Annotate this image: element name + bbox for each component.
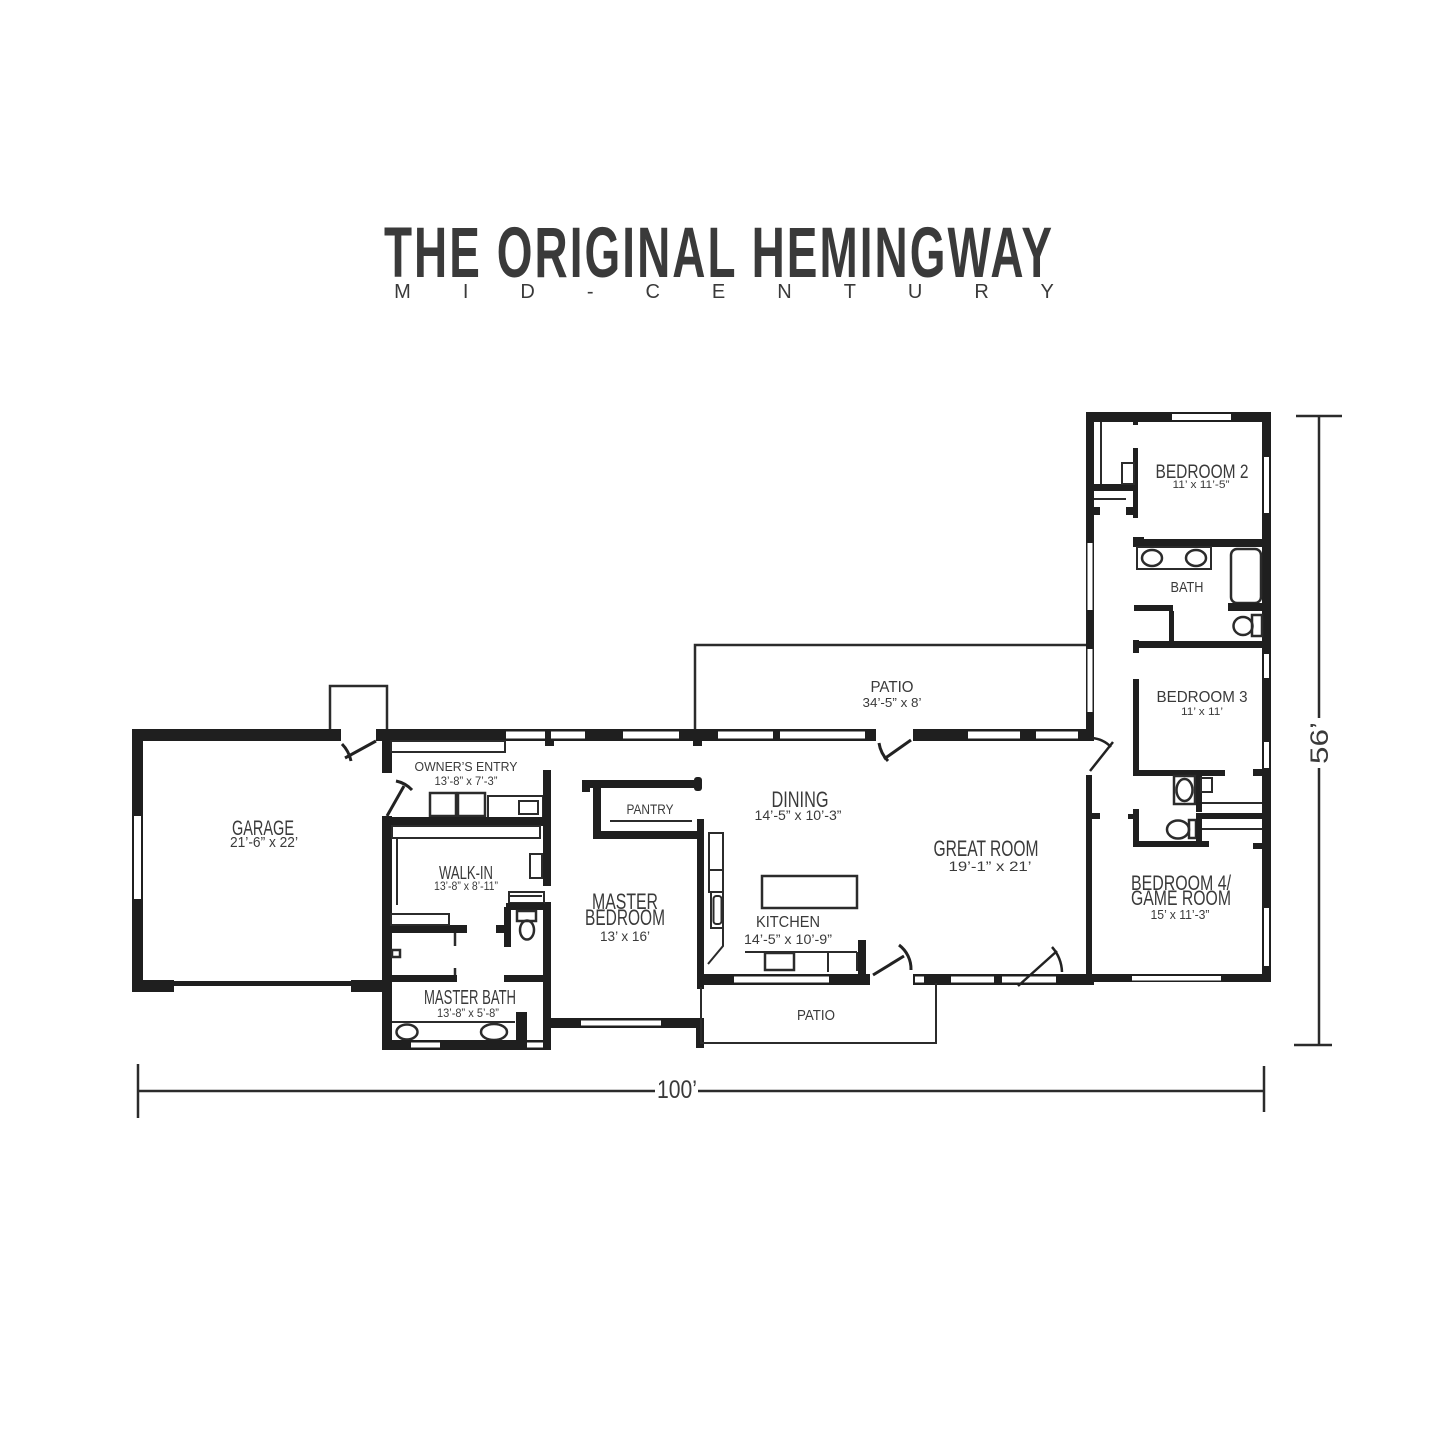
svg-text:14’-5” x 10’-3”: 14’-5” x 10’-3” [755,807,842,823]
svg-text:14’-5” x 10’-9”: 14’-5” x 10’-9” [744,931,832,947]
svg-text:PATIO: PATIO [797,1007,835,1024]
svg-text:MID-CENTURY: MID-CENTURY [394,281,1106,303]
svg-text:BATH: BATH [1171,579,1204,596]
svg-text:11’ x 11’-5”: 11’ x 11’-5” [1173,479,1230,491]
svg-text:13’-8” x 5’-8”: 13’-8” x 5’-8” [437,1008,499,1020]
svg-text:PATIO: PATIO [871,679,914,696]
svg-text:56’: 56’ [1306,722,1334,764]
svg-text:BEDROOM: BEDROOM [585,905,665,930]
svg-text:13’ x 16’: 13’ x 16’ [600,928,650,944]
svg-text:MASTER BATH: MASTER BATH [424,987,516,1009]
svg-text:21’-6” x 22’: 21’-6” x 22’ [230,834,298,851]
svg-text:19’-1” x 21’: 19’-1” x 21’ [949,858,1032,874]
svg-text:11’ x 11’: 11’ x 11’ [1181,706,1223,718]
svg-text:OWNER’S ENTRY: OWNER’S ENTRY [415,760,519,774]
svg-text:BEDROOM 3: BEDROOM 3 [1157,689,1248,706]
svg-text:15’ x 11’-3”: 15’ x 11’-3” [1151,907,1210,922]
svg-text:100’: 100’ [657,1076,697,1104]
svg-text:PANTRY: PANTRY [627,801,675,817]
svg-text:WALK-IN: WALK-IN [439,863,493,883]
svg-text:13’-8” x 8’-11”: 13’-8” x 8’-11” [434,881,498,893]
svg-text:13’-8” x 7’-3”: 13’-8” x 7’-3” [435,776,498,788]
svg-text:34’-5” x 8’: 34’-5” x 8’ [863,695,922,710]
svg-text:KITCHEN: KITCHEN [756,914,820,931]
